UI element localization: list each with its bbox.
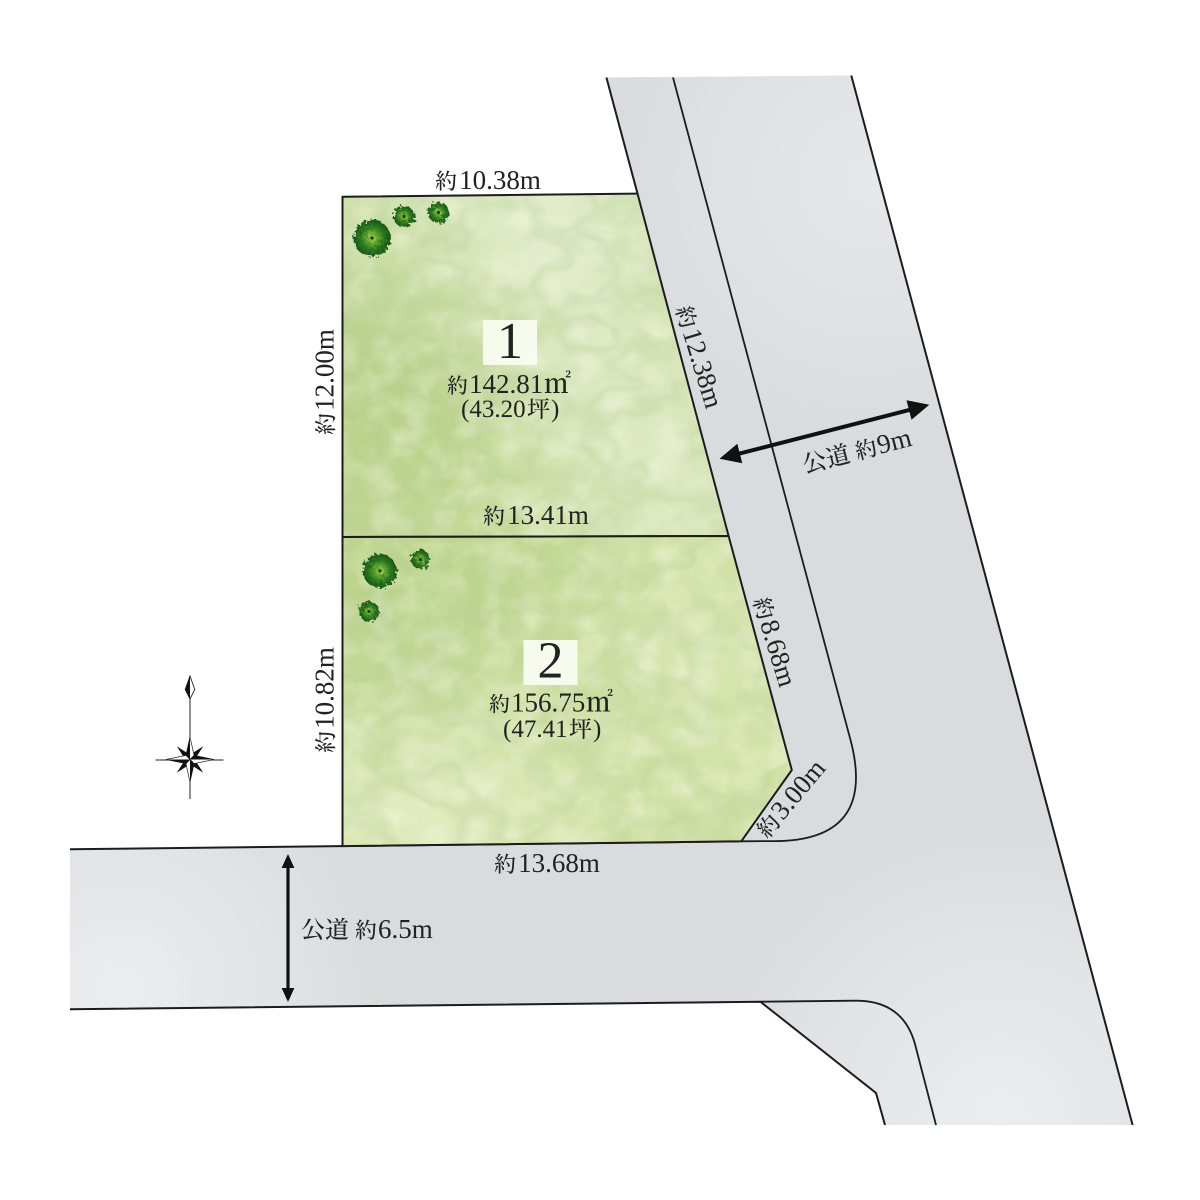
svg-text:1: 1 — [497, 313, 523, 370]
svg-text:2: 2 — [538, 633, 564, 690]
svg-text:156.75: 156.75 — [511, 688, 585, 718]
svg-text:142.81: 142.81 — [469, 369, 543, 399]
svg-text:(43.20: (43.20 — [461, 396, 526, 423]
svg-text:12.00m: 12.00m — [310, 329, 340, 411]
svg-text:): ) — [551, 396, 559, 423]
svg-text:10.82m: 10.82m — [310, 647, 340, 729]
svg-text:13.41m: 13.41m — [507, 500, 589, 530]
svg-text:): ) — [593, 716, 601, 743]
svg-text:10.38m: 10.38m — [459, 165, 541, 195]
svg-text:13.68m: 13.68m — [518, 848, 600, 878]
svg-text:6.5m: 6.5m — [378, 914, 433, 944]
svg-text:(47.41: (47.41 — [503, 716, 568, 743]
